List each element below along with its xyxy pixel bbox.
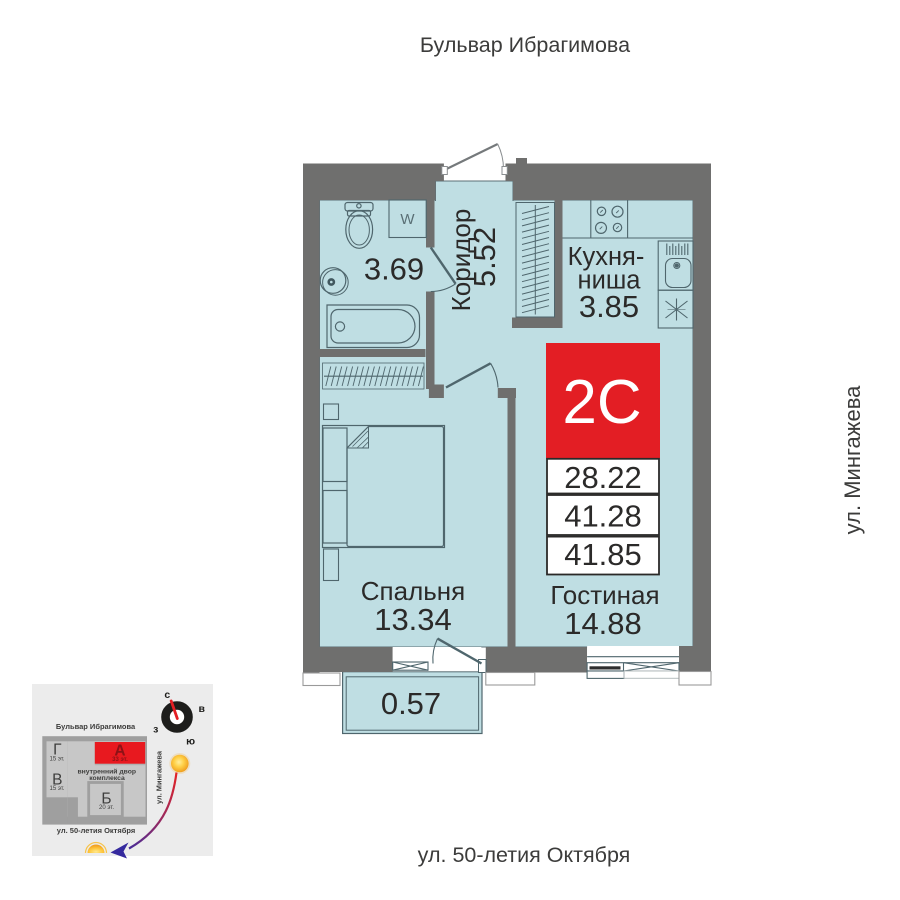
svg-text:ул. 50-летия Октября: ул. 50-летия Октября bbox=[418, 843, 631, 867]
svg-text:41.85: 41.85 bbox=[564, 537, 642, 572]
svg-text:комплекса: комплекса bbox=[89, 775, 125, 782]
svg-text:с: с bbox=[164, 689, 170, 701]
svg-text:15 эт.: 15 эт. bbox=[49, 786, 64, 792]
svg-text:з: з bbox=[153, 723, 158, 735]
svg-text:в: в bbox=[198, 703, 205, 715]
svg-text:41.28: 41.28 bbox=[564, 499, 642, 534]
svg-text:3.69: 3.69 bbox=[364, 252, 424, 287]
svg-text:0.57: 0.57 bbox=[381, 686, 441, 721]
svg-text:2C: 2C bbox=[562, 368, 641, 437]
svg-text:ул. Мингажева: ул. Мингажева bbox=[840, 385, 865, 535]
svg-text:ул. 50-летия Октября: ул. 50-летия Октября bbox=[57, 826, 135, 835]
svg-text:33 эт.: 33 эт. bbox=[112, 757, 128, 763]
svg-text:28.22: 28.22 bbox=[564, 460, 642, 495]
svg-text:ю: ю bbox=[186, 736, 195, 748]
svg-text:3.85: 3.85 bbox=[579, 289, 639, 324]
svg-text:14.88: 14.88 bbox=[564, 606, 642, 641]
svg-text:Бульвар Ибрагимова: Бульвар Ибрагимова bbox=[56, 722, 136, 731]
svg-text:15 эт.: 15 эт. bbox=[49, 757, 64, 763]
svg-text:5.52: 5.52 bbox=[467, 227, 502, 287]
svg-text:ул. Мингажева: ул. Мингажева bbox=[154, 750, 163, 804]
svg-text:Бульвар Ибрагимова: Бульвар Ибрагимова bbox=[420, 33, 630, 57]
svg-text:20 эт.: 20 эт. bbox=[99, 805, 114, 811]
svg-text:13.34: 13.34 bbox=[374, 602, 452, 637]
svg-text:W: W bbox=[400, 211, 415, 228]
